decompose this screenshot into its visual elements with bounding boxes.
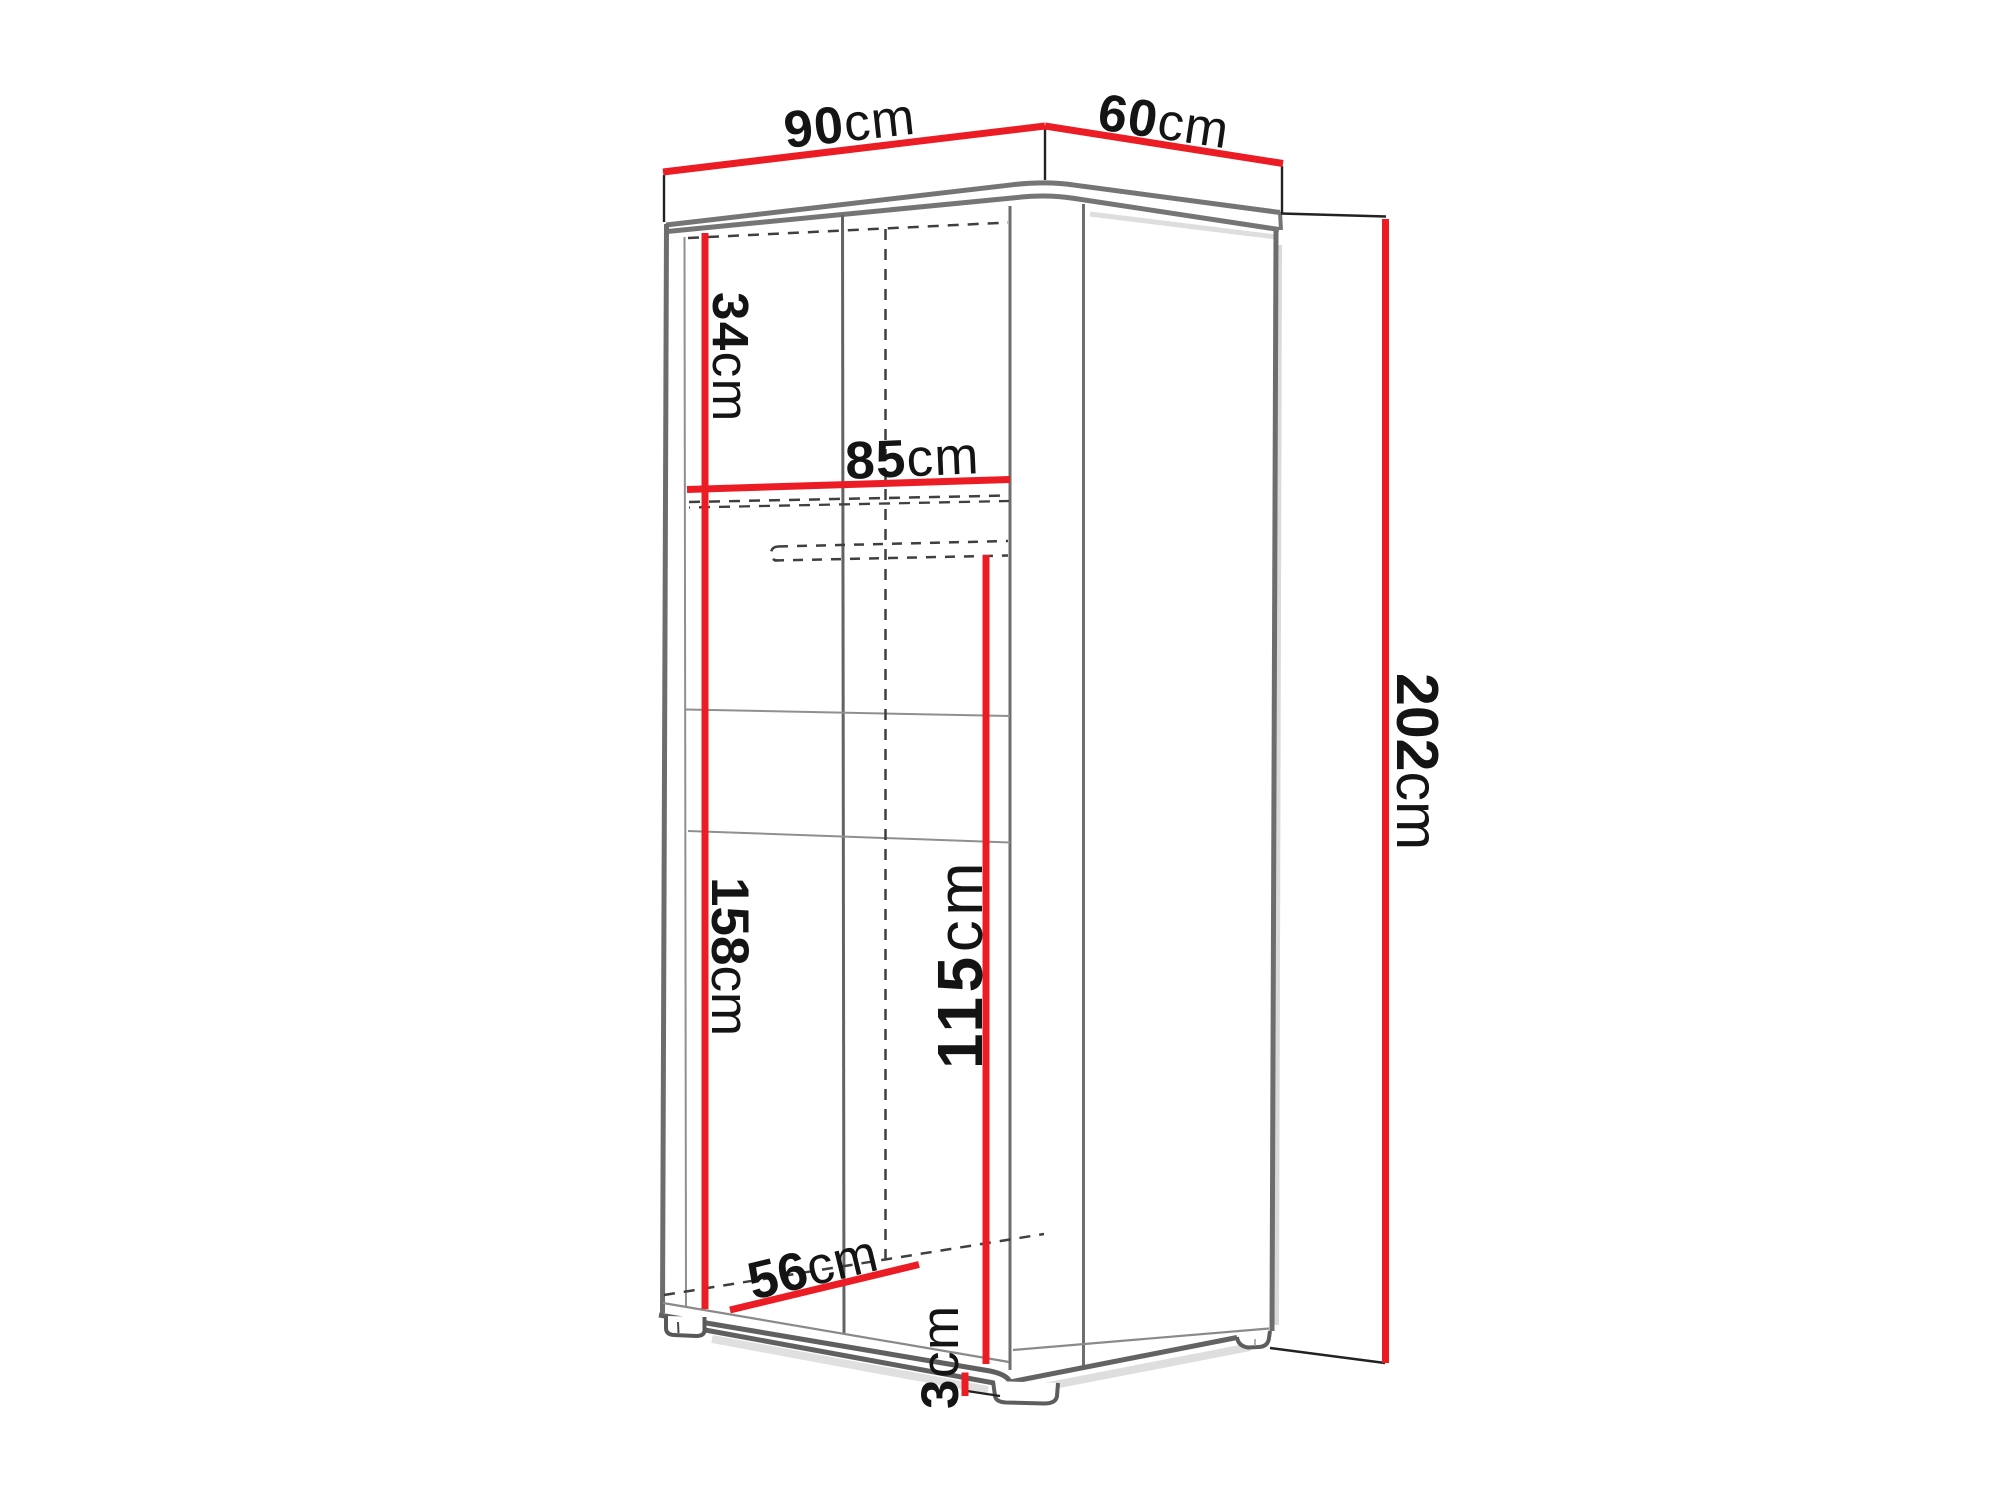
svg-text:85cm: 85cm [844,426,981,491]
svg-text:158cm: 158cm [700,877,759,1036]
svg-text:3cm: 3cm [911,1304,970,1409]
svg-text:115cm: 115cm [924,858,996,1069]
svg-text:34cm: 34cm [702,292,759,423]
svg-text:202cm: 202cm [1384,673,1450,850]
